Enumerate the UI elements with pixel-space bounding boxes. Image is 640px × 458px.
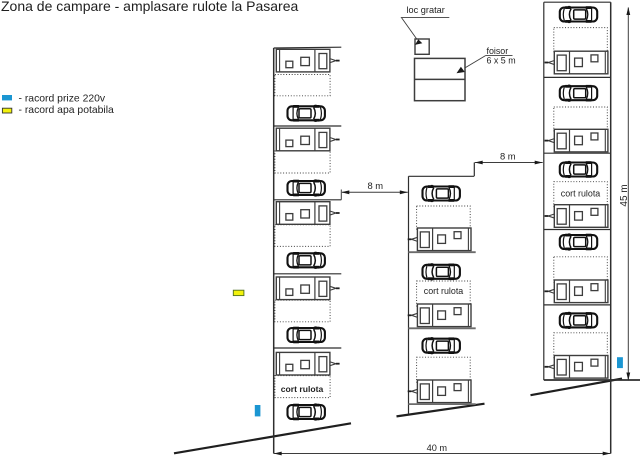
svg-text:- racord apa potabila: - racord apa potabila — [19, 105, 115, 116]
svg-text:8 m: 8 m — [367, 180, 383, 191]
svg-text:40 m: 40 m — [427, 443, 448, 453]
svg-text:cort rulota: cort rulota — [424, 286, 464, 296]
svg-text:foisor: foisor — [487, 46, 509, 56]
svg-text:cort rulota: cort rulota — [561, 189, 601, 199]
svg-text:8 m: 8 m — [500, 151, 516, 162]
svg-text:Zona de campare - amplasare ru: Zona de campare - amplasare rulote la Pa… — [1, 0, 298, 14]
svg-text:45 m: 45 m — [619, 184, 630, 206]
svg-text:- racord prize 220v: - racord prize 220v — [19, 93, 106, 104]
svg-text:cort rulota: cort rulota — [281, 384, 324, 394]
svg-text:6 x 5 m: 6 x 5 m — [487, 56, 516, 66]
svg-text:loc gratar: loc gratar — [407, 5, 445, 15]
